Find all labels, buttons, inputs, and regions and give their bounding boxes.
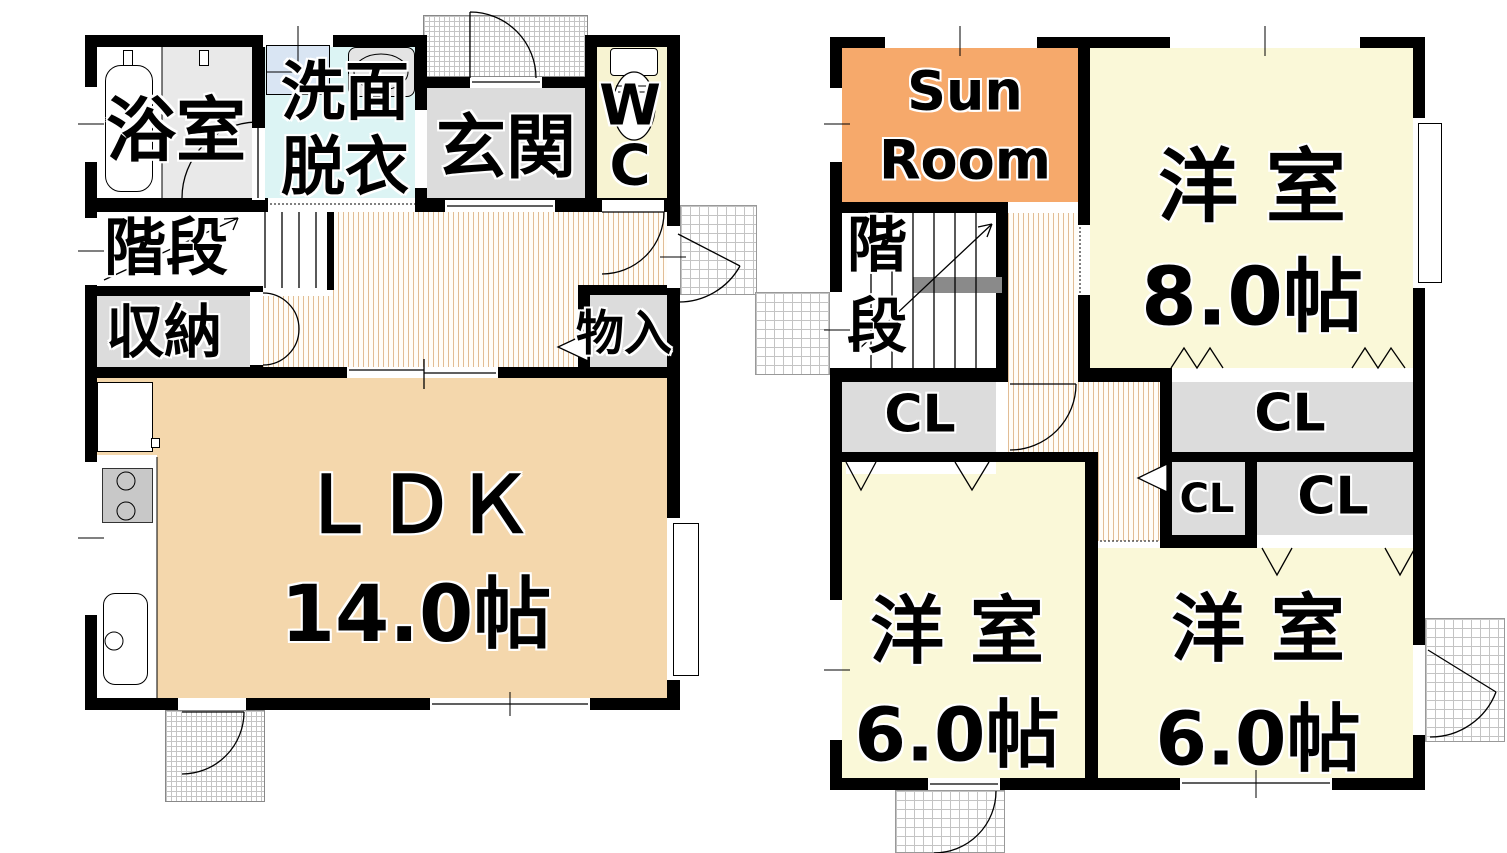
label-closet-small-left: CL xyxy=(1180,477,1235,521)
sliding-door xyxy=(347,367,498,378)
east-deck-grid-1f xyxy=(680,205,757,295)
label-sunroom: Sun Room xyxy=(879,57,1051,194)
kitchen-sink xyxy=(103,593,148,685)
wall-stud-mark xyxy=(199,50,209,66)
corridor-2f-middle xyxy=(1008,382,1160,452)
wall xyxy=(578,285,670,295)
wall xyxy=(1160,452,1413,462)
label-closet-small-right: CL xyxy=(1297,468,1368,525)
window xyxy=(830,88,842,162)
label-closet-1f: 物入 xyxy=(576,308,672,361)
window xyxy=(430,698,590,710)
door-opening xyxy=(250,292,263,365)
window xyxy=(830,600,842,740)
toilet-tank xyxy=(610,48,658,76)
label-wc: W C xyxy=(599,77,661,198)
window xyxy=(85,87,97,162)
door-opening xyxy=(415,110,427,188)
closet-door-track xyxy=(846,462,996,474)
wall xyxy=(996,213,1008,382)
window xyxy=(1170,37,1360,48)
label-bathroom: 浴室 xyxy=(106,93,246,170)
east-balcony-grid-2f xyxy=(1425,618,1505,742)
door-opening xyxy=(1413,645,1425,735)
stair-handrail xyxy=(913,277,1002,293)
label-storage: 収納 xyxy=(106,301,222,365)
wall xyxy=(585,35,597,212)
label-western-6-left: 洋 室 6.0帖 xyxy=(854,580,1059,787)
sliding-door xyxy=(445,200,555,212)
stove xyxy=(102,468,153,523)
label-closet-large: CL xyxy=(1254,385,1325,442)
wall xyxy=(1160,378,1172,548)
wall xyxy=(830,452,1086,462)
label-washroom: 洗面 脱衣 xyxy=(281,56,409,206)
wall xyxy=(327,205,334,290)
label-ldk: ＬＤＫ 14.0帖 xyxy=(281,452,551,670)
door-opening xyxy=(470,77,542,88)
window xyxy=(85,462,97,615)
lower-roof-grid-2f xyxy=(755,292,830,375)
door-opening xyxy=(1078,225,1090,295)
label-western-8: 洋 室 8.0帖 xyxy=(1141,133,1363,354)
window-outer-frame xyxy=(1418,123,1442,283)
door-opening xyxy=(1008,202,1078,213)
wall xyxy=(830,368,1008,382)
window xyxy=(85,218,97,285)
door-opening xyxy=(252,128,265,200)
window-outer-frame xyxy=(673,523,699,676)
label-stairs-2f: 階 段 xyxy=(847,206,907,368)
door-opening xyxy=(178,698,246,710)
corridor-2f-lower xyxy=(1098,452,1160,541)
cabinet-knob xyxy=(151,438,160,448)
window xyxy=(830,292,842,368)
label-entrance: 玄関 xyxy=(436,110,576,187)
closet-door-track xyxy=(1172,368,1413,382)
label-stairs-1f: 階段 xyxy=(104,214,228,282)
corridor-2f-vertical xyxy=(1008,213,1078,382)
wall xyxy=(85,698,680,710)
window xyxy=(885,37,1037,48)
terrace-grid-1f xyxy=(165,710,265,802)
hallway-1f-upper xyxy=(333,212,667,296)
wall xyxy=(1078,37,1090,213)
wall-stud-mark xyxy=(123,50,133,66)
closet-door-track xyxy=(1257,535,1413,548)
floor-plan: 浴室 洗面 脱衣 玄関 W C 階段 収納 物入 ＬＤＫ 14.0帖 Sun R… xyxy=(0,0,1507,853)
door-opening xyxy=(667,226,680,288)
wall xyxy=(85,286,263,296)
label-western-6-right: 洋 室 6.0帖 xyxy=(1155,575,1360,794)
balcony-grid-2f xyxy=(895,790,1005,853)
door-opening xyxy=(602,200,664,212)
label-closet-under-stairs: CL xyxy=(884,386,955,443)
refrigerator xyxy=(97,382,153,452)
wall xyxy=(1085,452,1098,778)
entrance-porch-grid xyxy=(423,15,588,77)
